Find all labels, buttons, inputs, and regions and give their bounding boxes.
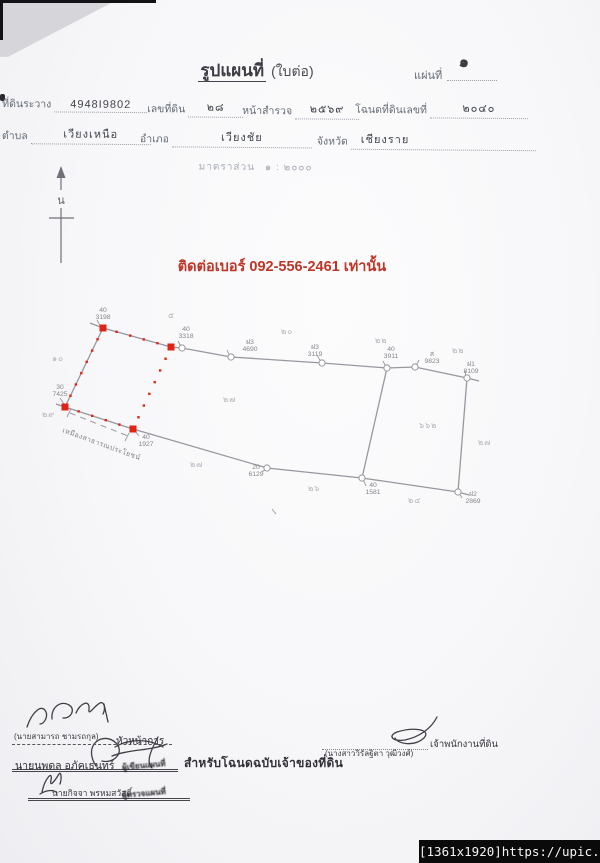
red-boundary-dot <box>154 381 156 383</box>
adjacent-parcel-number: ๒๙ <box>42 410 55 419</box>
red-boundary-dot <box>143 338 145 340</box>
survey-marker-circle <box>455 489 461 495</box>
marker-tick <box>97 320 101 327</box>
scale-label: มาตราส่วน <box>199 162 255 173</box>
parcel-boundary-line <box>65 328 103 407</box>
scale-value: ๑ : ๒๐๐๐ <box>265 162 313 173</box>
survey-marker-circle <box>412 364 418 370</box>
red-boundary-dot <box>96 338 98 340</box>
field-value: ๒๐๔๐ <box>430 98 528 119</box>
red-corner-marker <box>130 426 137 433</box>
field-value: ๒๘ <box>188 97 243 117</box>
adjacent-parcel-number: ๒๖ <box>308 484 320 493</box>
red-boundary-dot <box>143 404 145 406</box>
field-survey-sheet: ที่ดินระวาง 4948I9802 <box>2 95 147 113</box>
marker-tick <box>135 431 139 436</box>
adjacent-parcel-number: ๒๒ <box>375 336 388 345</box>
marker-label: ส9823 <box>424 351 439 365</box>
field-value: เวียงชัย <box>172 127 312 148</box>
marker-tick <box>465 371 466 377</box>
field-district: อำเภอ เวียงชัย <box>140 127 312 148</box>
survey-marker-circle <box>464 375 470 381</box>
adjacent-parcel-number: ๒๗ <box>478 438 491 447</box>
contact-notice: ติดต่อเบอร์ 092-556-2461 เท่านั้น <box>152 255 412 278</box>
land-officer-title: เจ้าพนักงานที่ดิน <box>430 737 498 752</box>
marker-label: 307425 <box>52 384 67 398</box>
red-boundary-dot <box>156 342 158 344</box>
marker-tick <box>317 355 321 362</box>
marker-label: 401927 <box>138 434 153 448</box>
marker-tick <box>125 433 129 441</box>
red-corner-marker <box>62 404 69 411</box>
adjacent-parcel-number: ๒๔ <box>408 496 421 505</box>
field-label: เลขที่ดิน <box>147 103 185 115</box>
marker-label: ฝ22869 <box>465 491 480 505</box>
marker-tick <box>272 509 276 514</box>
field-label: หน้าสำรวจ <box>242 105 292 117</box>
marker-tick <box>363 479 366 486</box>
parcel-boundary-line <box>56 404 469 495</box>
field-parcel-number: เลขที่ดิน ๒๘ <box>147 97 243 118</box>
red-boundary-dot <box>69 395 71 397</box>
marker-label: 403911 <box>384 346 399 360</box>
marker-label: 403318 <box>178 326 193 340</box>
parcel-boundary-line <box>90 323 479 381</box>
field-value: เวียงเหนือ <box>31 124 151 145</box>
adjacent-parcel-number: ๕ <box>168 311 175 320</box>
red-boundary-dot <box>80 372 82 374</box>
land-officer-name: (นางสาววิรัลฐิตา วุฒิวงศ์) <box>325 747 413 760</box>
survey-marker-circle <box>359 475 365 481</box>
field-label: ตำบล <box>2 130 28 142</box>
field-subdistrict: ตำบล เวียงเหนือ <box>2 124 151 145</box>
ditch-dashed-line <box>70 413 128 436</box>
signer1-name: (นายสามารถ ชามรถกุล) <box>14 730 99 743</box>
marker-tick <box>262 469 266 472</box>
red-boundary-dot <box>86 361 88 363</box>
ditch-label: เหมืองสาธารณประโยชน์ <box>61 425 142 462</box>
marker-label: 401581 <box>365 482 380 496</box>
red-boundary-dot <box>118 423 120 425</box>
adjacent-parcel-number: ๒๗ <box>190 460 203 469</box>
marker-label: ฝ33119 <box>308 344 323 358</box>
map-scale: มาตราส่วน๑ : ๒๐๐๐ <box>199 160 313 176</box>
red-boundary-dot <box>137 416 139 418</box>
red-corner-marker <box>168 344 175 351</box>
field-value: ๒๕๖๙ <box>295 99 359 120</box>
signer3-name: นายกิจจา พรหมสวัสดิ์ <box>52 786 132 800</box>
survey-marker-circle <box>264 465 270 471</box>
watermark-bar: [1361x1920]https://upic.me/ <box>419 840 600 863</box>
field-value: 4948I9802 <box>54 98 147 113</box>
owner-copy-label: สำหรับโฉนดฉบับเจ้าของที่ดิน <box>184 754 343 773</box>
marker-label: 403198 <box>95 307 110 321</box>
marker-tick <box>67 409 71 417</box>
marker-tick <box>178 341 181 347</box>
red-boundary-dot <box>105 419 107 421</box>
red-boundary-dot <box>164 358 166 360</box>
marker-label: ฝ34690 <box>242 339 257 353</box>
scanned-survey-document: รูปแผนที่(ใบต่อ) แผ่นที่ ๑ ที่ดินระวาง 4… <box>0 0 600 863</box>
marker-tick <box>416 360 419 366</box>
survey-marker-circle <box>384 365 390 371</box>
marker-tick <box>383 361 386 367</box>
field-label: โฉนดที่ดินเลขที่ <box>355 104 427 117</box>
survey-marker-circle <box>228 354 234 360</box>
red-boundary-dot <box>91 415 93 417</box>
field-deed-number: โฉนดที่ดินเลขที่ ๒๐๔๐ <box>355 98 528 119</box>
marker-tick <box>227 350 230 357</box>
red-boundary-dot <box>129 334 131 336</box>
marker-tick <box>60 398 64 404</box>
form-header: ที่ดินระวาง 4948I9802 เลขที่ดิน ๒๘ หน้าส… <box>0 0 600 205</box>
field-label: ที่ดินระวาง <box>2 98 51 110</box>
survey-marker-circle <box>179 345 185 351</box>
red-boundary-dot <box>75 383 77 385</box>
field-province: จังหวัด เชียงราย <box>317 129 536 151</box>
marker-tick <box>459 493 462 498</box>
survey-marker-circle <box>319 360 325 366</box>
signature-chief <box>27 703 108 727</box>
adjacent-parcel-number: ๒๒ <box>452 346 465 355</box>
marker-label: ฝ18109 <box>463 361 478 375</box>
adjacent-parcel-number: ๖๖๒ <box>419 421 437 430</box>
field-value: เชียงราย <box>351 130 536 151</box>
red-boundary-dot <box>91 349 93 351</box>
adjacent-parcel-number: ๒๗ <box>223 395 236 404</box>
parcel-boundary-line <box>458 378 467 492</box>
adjacent-parcel-number: ๑๐ <box>52 354 64 363</box>
signer1-title: หัวหน้าการ <box>116 734 164 749</box>
field-label: อำเภอ <box>140 133 169 145</box>
red-boundary-dot <box>115 331 117 333</box>
signer2-name: นายนพดล อภัคเธนทร์ <box>15 757 114 774</box>
field-label: จังหวัด <box>317 135 348 147</box>
red-corner-marker <box>100 325 107 332</box>
parcel-boundary-line <box>362 368 387 478</box>
adjacent-parcel-number: ๒๐ <box>281 327 293 336</box>
marker-label: 206129 <box>248 464 263 478</box>
field-survey-page: หน้าสำรวจ ๒๕๖๙ <box>242 99 359 120</box>
red-boundary-dot <box>159 369 161 371</box>
red-boundary-dot <box>77 410 79 412</box>
red-boundary-dot <box>148 393 150 395</box>
